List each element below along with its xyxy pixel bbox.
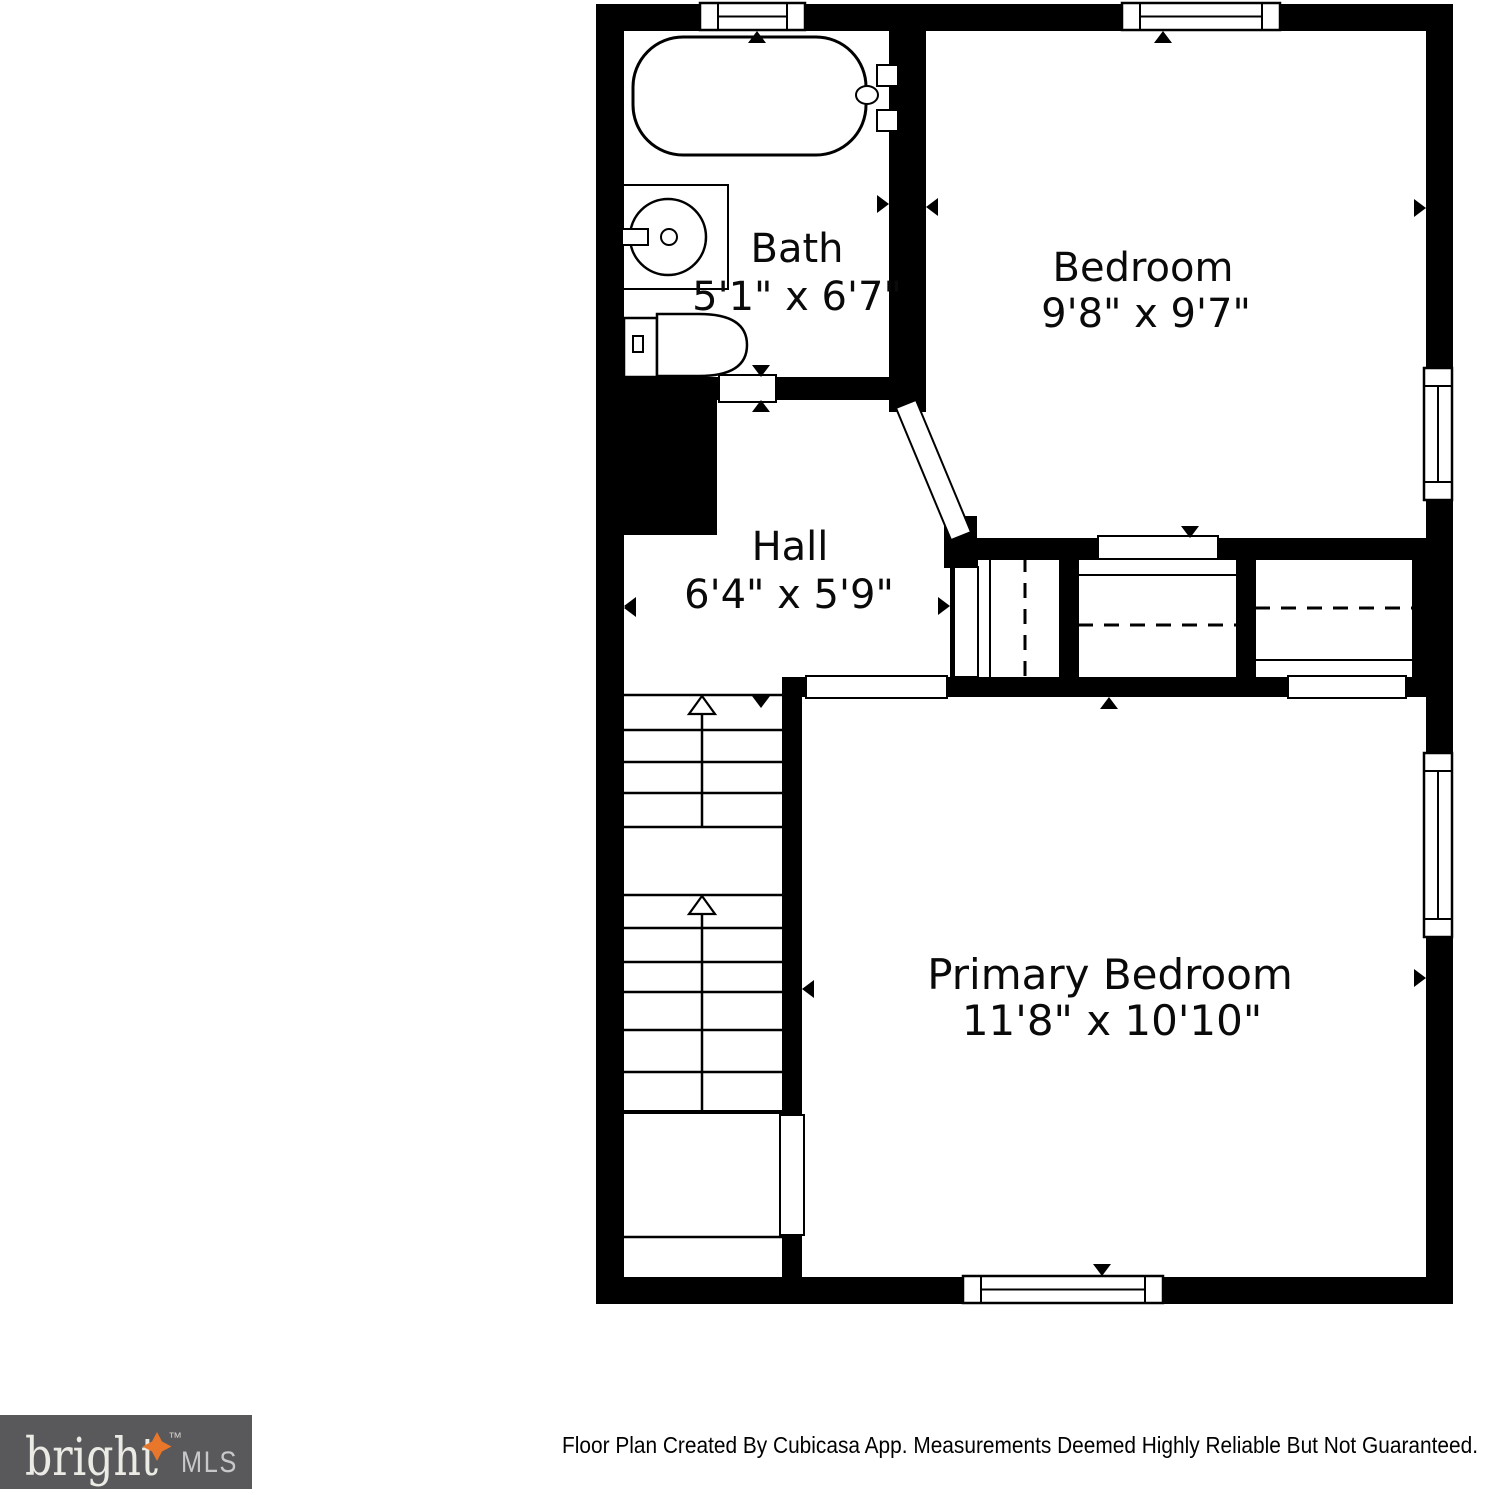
marker-primary-top bbox=[1100, 697, 1118, 709]
marker-primary-right bbox=[1414, 969, 1426, 987]
logo-trademark: ™ bbox=[168, 1429, 182, 1445]
door-hall-to-primary bbox=[806, 676, 947, 698]
floor-plan-drawing: Bath 5'1" x 6'7" Bedroom 9'8" x 9'7" Hal… bbox=[0, 0, 1486, 1499]
floor-plan-page: Bath 5'1" x 6'7" Bedroom 9'8" x 9'7" Hal… bbox=[0, 0, 1486, 1499]
door-stairs-to-primary bbox=[780, 1115, 804, 1235]
marker-hall-right bbox=[938, 597, 950, 615]
room-label-primary-bedroom: Primary Bedroom bbox=[927, 950, 1293, 999]
window-bath-top bbox=[700, 3, 805, 30]
sink-faucet-icon bbox=[622, 229, 648, 245]
door-closet-1 bbox=[954, 567, 978, 677]
bath-fixtures bbox=[622, 37, 898, 377]
marker-primary-window bbox=[1093, 1264, 1111, 1276]
room-label-hall: Hall bbox=[752, 524, 829, 570]
room-label-bedroom: Bedroom bbox=[1053, 245, 1234, 291]
window-bedroom-top bbox=[1122, 3, 1280, 30]
room-dimensions-bath: 5'1" x 6'7" bbox=[692, 274, 902, 320]
room-dimensions-primary-bedroom: 11'8" x 10'10" bbox=[962, 996, 1262, 1045]
marker-stairs-top bbox=[752, 696, 770, 708]
door-closet-3 bbox=[1288, 676, 1406, 698]
doors bbox=[719, 375, 1406, 1235]
room-dimensions-bedroom: 9'8" x 9'7" bbox=[1041, 291, 1251, 337]
marker-bath-right bbox=[877, 195, 889, 213]
logo-suffix-text: MLS bbox=[181, 1446, 238, 1479]
wall-markers bbox=[624, 31, 1426, 1276]
closet-3 bbox=[1255, 557, 1413, 680]
window-bedroom-right bbox=[1424, 368, 1452, 500]
bathtub-icon bbox=[633, 37, 898, 155]
wall-closet-east-strip bbox=[1413, 538, 1426, 697]
staircase bbox=[624, 695, 782, 1237]
wall-exterior-right bbox=[1426, 4, 1453, 1304]
brand-logo: bright ™ MLS bbox=[0, 1415, 252, 1489]
marker-primary-left bbox=[802, 980, 814, 998]
wall-mass-hall-northwest bbox=[596, 377, 717, 535]
wall-exterior-left bbox=[596, 4, 624, 1304]
room-dimensions-hall: 6'4" x 5'9" bbox=[684, 572, 894, 618]
door-bedroom-diagonal bbox=[896, 400, 971, 540]
closet-1 bbox=[977, 557, 1060, 680]
closets bbox=[977, 557, 1413, 680]
tub-spout-icon bbox=[856, 86, 878, 104]
window-primary-right bbox=[1424, 753, 1452, 937]
marker-bedroom-right bbox=[1414, 199, 1426, 217]
marker-bedroom-left bbox=[926, 198, 938, 216]
window-primary-bottom bbox=[963, 1276, 1163, 1303]
wall-closet-divider-1 bbox=[1060, 557, 1078, 680]
room-label-bath: Bath bbox=[751, 226, 844, 272]
wall-closet-divider-2 bbox=[1237, 557, 1255, 680]
logo-brand-text: bright bbox=[25, 1428, 158, 1488]
toilet-icon bbox=[624, 314, 747, 377]
door-closet-2 bbox=[1098, 536, 1218, 559]
closet-2 bbox=[1078, 557, 1237, 680]
footer-disclaimer: Floor Plan Created By Cubicasa App. Meas… bbox=[562, 1432, 1478, 1458]
marker-bedroom-window bbox=[1154, 31, 1172, 43]
door-bath bbox=[719, 375, 776, 402]
